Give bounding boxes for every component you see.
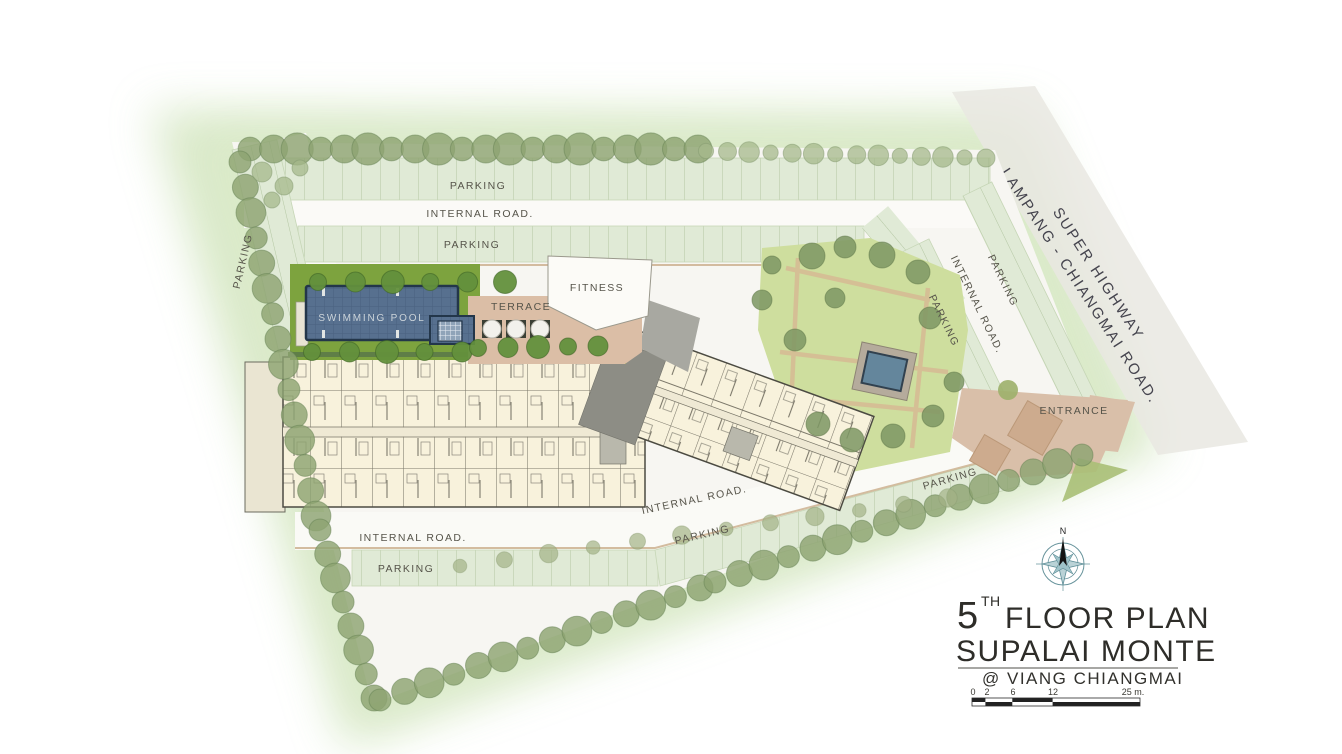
tree-icon	[822, 525, 852, 555]
tree-icon	[739, 142, 760, 163]
tree-icon	[292, 160, 308, 176]
tree-icon	[881, 424, 905, 448]
tree-icon	[249, 250, 275, 276]
tree-icon	[1071, 444, 1093, 466]
tree-icon	[298, 478, 324, 504]
tree-icon	[496, 552, 512, 568]
tree-icon	[381, 271, 404, 294]
tree-icon	[332, 591, 354, 613]
title-floor-number: 5	[957, 595, 978, 637]
tree-icon	[340, 342, 360, 362]
scale-tick-0: 0	[970, 687, 975, 697]
tree-icon	[591, 612, 613, 634]
label-terrace: TERRACE	[491, 301, 551, 313]
tree-icon	[540, 544, 558, 562]
tree-icon	[252, 162, 272, 182]
tree-icon	[704, 571, 726, 593]
tree-icon	[422, 274, 439, 291]
label-entrance: ENTRANCE	[1040, 405, 1109, 417]
tree-icon	[840, 428, 864, 452]
tree-icon	[912, 147, 930, 165]
tree-icon	[613, 601, 639, 627]
tree-icon	[376, 341, 399, 364]
garden-pool-water	[862, 351, 908, 391]
tree-icon	[998, 469, 1020, 491]
tree-icon	[799, 243, 825, 269]
tree-icon	[933, 147, 954, 168]
tree-icon	[392, 678, 418, 704]
tree-icon	[443, 663, 465, 685]
title-project-name: SUPALAI MONTE	[956, 635, 1217, 668]
title-floor-text: FLOOR PLAN	[1005, 602, 1210, 635]
tree-icon	[262, 303, 284, 325]
tree-icon	[664, 586, 686, 608]
spa-pool	[438, 321, 462, 341]
compass-rose-icon: N	[1036, 526, 1090, 591]
tree-icon	[236, 198, 266, 228]
tree-icon	[355, 663, 377, 685]
tree-icon	[344, 635, 374, 665]
tree-icon	[517, 637, 539, 659]
tree-icon	[922, 405, 944, 427]
tree-icon	[470, 340, 487, 357]
tree-icon	[321, 563, 351, 593]
label-parking-bottom-left: PARKING	[378, 563, 434, 575]
tree-icon	[853, 504, 867, 518]
tree-icon	[763, 515, 779, 531]
tree-icon	[414, 668, 444, 698]
tree-icon	[281, 402, 307, 428]
tree-icon	[252, 274, 282, 304]
label-swimming-pool: SWIMMING POOL	[318, 313, 425, 324]
tree-icon	[828, 147, 843, 162]
umbrella-icon	[507, 320, 525, 338]
label-internal-road-bottom-left: INTERNAL ROAD.	[359, 532, 466, 544]
title-floor-suffix: TH	[981, 593, 1001, 609]
tree-icon	[285, 425, 315, 455]
tree-icon	[586, 541, 600, 555]
tree-icon	[825, 288, 845, 308]
tree-icon	[369, 689, 391, 711]
site-plan-page: SUPER HIGHWAY LAMPANG - CHIANGMAI ROAD.	[0, 0, 1342, 754]
tree-icon	[630, 533, 646, 549]
tree-icon	[763, 145, 778, 160]
tree-icon	[309, 519, 331, 541]
tree-icon	[539, 627, 565, 653]
tree-icon	[278, 379, 300, 401]
scale-tick-2: 2	[984, 687, 989, 697]
compass-north-label: N	[1060, 526, 1067, 536]
tree-icon	[450, 137, 474, 161]
tree-icon	[869, 242, 895, 268]
tree-icon	[294, 454, 316, 476]
tree-icon	[562, 616, 592, 646]
tree-icon	[521, 137, 545, 161]
tree-icon	[229, 151, 251, 173]
tree-icon	[527, 336, 550, 359]
scale-end-label: 25 m.	[1122, 687, 1145, 697]
label-parking-top: PARKING	[450, 180, 506, 192]
tree-icon	[264, 192, 280, 208]
umbrella-icon	[483, 320, 501, 338]
tree-icon	[345, 272, 365, 292]
tree-icon	[803, 143, 824, 164]
label-parking-upper-inner: PARKING	[444, 239, 500, 251]
tree-icon	[560, 338, 577, 355]
tree-icon	[957, 150, 972, 165]
tree-icon	[663, 137, 687, 161]
tree-icon	[784, 329, 806, 351]
tree-icon	[906, 260, 930, 284]
tree-icon	[488, 642, 518, 672]
tree-icon	[896, 496, 912, 512]
tree-icon	[848, 146, 866, 164]
tree-icon	[783, 144, 801, 162]
tree-icon	[1043, 449, 1073, 479]
tree-icon	[453, 559, 467, 573]
title-block: 5 TH FLOOR PLAN SUPALAI MONTE @ VIANG CH…	[956, 593, 1217, 706]
tree-icon	[892, 148, 907, 163]
tree-icon	[494, 271, 517, 294]
tree-icon	[868, 145, 889, 166]
tree-icon	[592, 137, 616, 161]
tree-icon	[310, 274, 327, 291]
tree-icon	[309, 137, 333, 161]
tree-icon	[452, 342, 472, 362]
tree-icon	[939, 489, 957, 507]
label-internal-road-top: INTERNAL ROAD.	[426, 208, 533, 220]
tree-icon	[763, 256, 781, 274]
tree-icon	[466, 653, 492, 679]
tree-icon	[304, 344, 321, 361]
tree-icon	[777, 546, 799, 568]
tree-icon	[806, 507, 824, 525]
tree-icon	[806, 412, 830, 436]
tree-icon	[265, 326, 291, 352]
tree-icon	[458, 272, 478, 292]
tree-icon	[588, 336, 608, 356]
tree-icon	[719, 143, 737, 161]
scale-tick-12: 12	[1048, 687, 1058, 697]
label-fitness: FITNESS	[570, 282, 624, 294]
tree-icon	[636, 590, 666, 620]
tree-icon	[977, 149, 995, 167]
tree-icon	[944, 372, 964, 392]
scale-tick-6: 6	[1010, 687, 1015, 697]
tree-icon	[851, 520, 873, 542]
tree-icon	[749, 550, 779, 580]
tree-icon	[269, 349, 299, 379]
scale-bar: 0 2 6 12 25 m.	[970, 687, 1144, 706]
tree-icon	[275, 177, 293, 195]
title-location: @ VIANG CHIANGMAI	[982, 669, 1183, 688]
tree-icon	[498, 338, 518, 358]
tree-icon	[834, 236, 856, 258]
tree-icon	[752, 290, 772, 310]
site-plan-canvas: SUPER HIGHWAY LAMPANG - CHIANGMAI ROAD.	[0, 0, 1342, 754]
tree-icon	[416, 344, 433, 361]
tree-icon	[698, 143, 713, 158]
entrance-green-patch	[998, 380, 1018, 400]
tree-icon	[380, 137, 404, 161]
